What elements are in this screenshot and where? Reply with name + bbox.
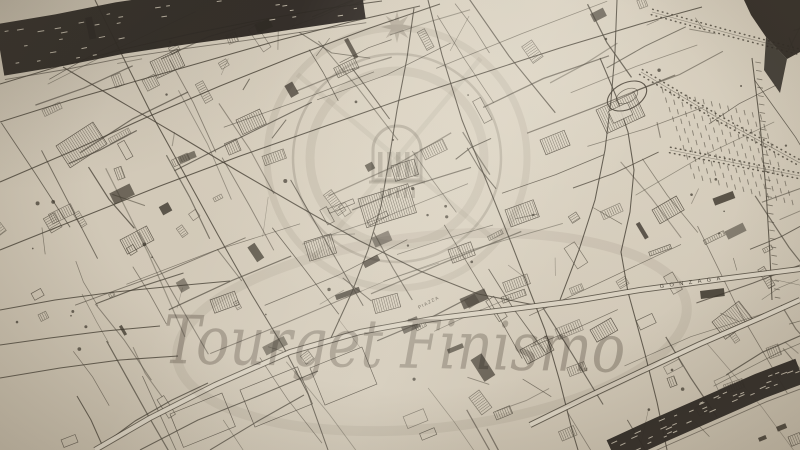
map-photo: GONZAGA PIAZZA Tourget Finismo (0, 0, 800, 450)
watermark: Tourget Finismo (0, 0, 800, 450)
watermark-text: Tourget Finismo (163, 301, 626, 388)
